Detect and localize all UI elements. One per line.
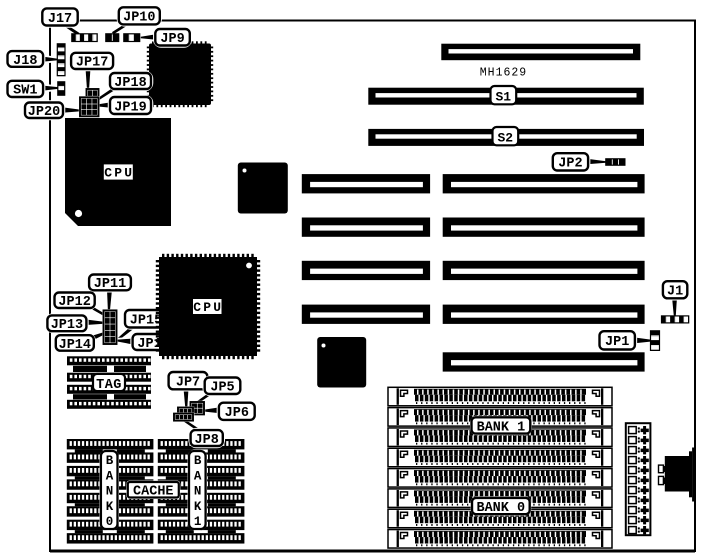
svg-text:JP9: JP9 (160, 32, 184, 47)
svg-text:JP20: JP20 (28, 105, 60, 120)
svg-text:B: B (194, 454, 202, 468)
svg-text:0: 0 (106, 515, 114, 529)
svg-text:JP8: JP8 (195, 433, 219, 448)
svg-text:JP1: JP1 (605, 335, 629, 350)
svg-text:K: K (194, 500, 202, 514)
svg-text:JP12: JP12 (58, 295, 90, 310)
svg-text:S1: S1 (495, 90, 511, 105)
svg-text:JP5: JP5 (210, 381, 234, 396)
svg-text:JP19: JP19 (114, 100, 146, 115)
svg-text:TAG: TAG (96, 378, 122, 393)
svg-text:J1: J1 (667, 285, 683, 300)
svg-text:JP2: JP2 (558, 157, 582, 172)
svg-text:A: A (106, 469, 114, 483)
svg-text:K: K (106, 500, 114, 514)
svg-text:J18: J18 (13, 54, 37, 69)
svg-text:JP18: JP18 (114, 76, 146, 91)
svg-text:JP11: JP11 (94, 277, 126, 292)
svg-text:CACHE: CACHE (133, 485, 174, 500)
svg-text:J17: J17 (48, 12, 72, 27)
svg-text:S2: S2 (497, 131, 513, 146)
svg-text:MH1629: MH1629 (480, 67, 527, 80)
svg-text:SW1: SW1 (13, 84, 37, 99)
svg-text:JP13: JP13 (51, 318, 83, 333)
svg-text:1: 1 (194, 515, 202, 529)
svg-text:B: B (106, 454, 114, 468)
svg-text:N: N (106, 485, 114, 499)
svg-text:JP6: JP6 (225, 406, 249, 421)
svg-text:JP14: JP14 (59, 338, 91, 353)
svg-text:JP7: JP7 (176, 375, 200, 390)
svg-text:N: N (194, 485, 202, 499)
svg-text:BANK 0: BANK 0 (476, 501, 525, 516)
svg-text:A: A (194, 469, 202, 483)
svg-text:CPU: CPU (193, 300, 223, 315)
svg-text:JP10: JP10 (123, 11, 155, 26)
svg-text:BANK 1: BANK 1 (477, 421, 526, 436)
svg-text:JP17: JP17 (76, 56, 108, 71)
svg-text:CPU: CPU (104, 165, 134, 180)
